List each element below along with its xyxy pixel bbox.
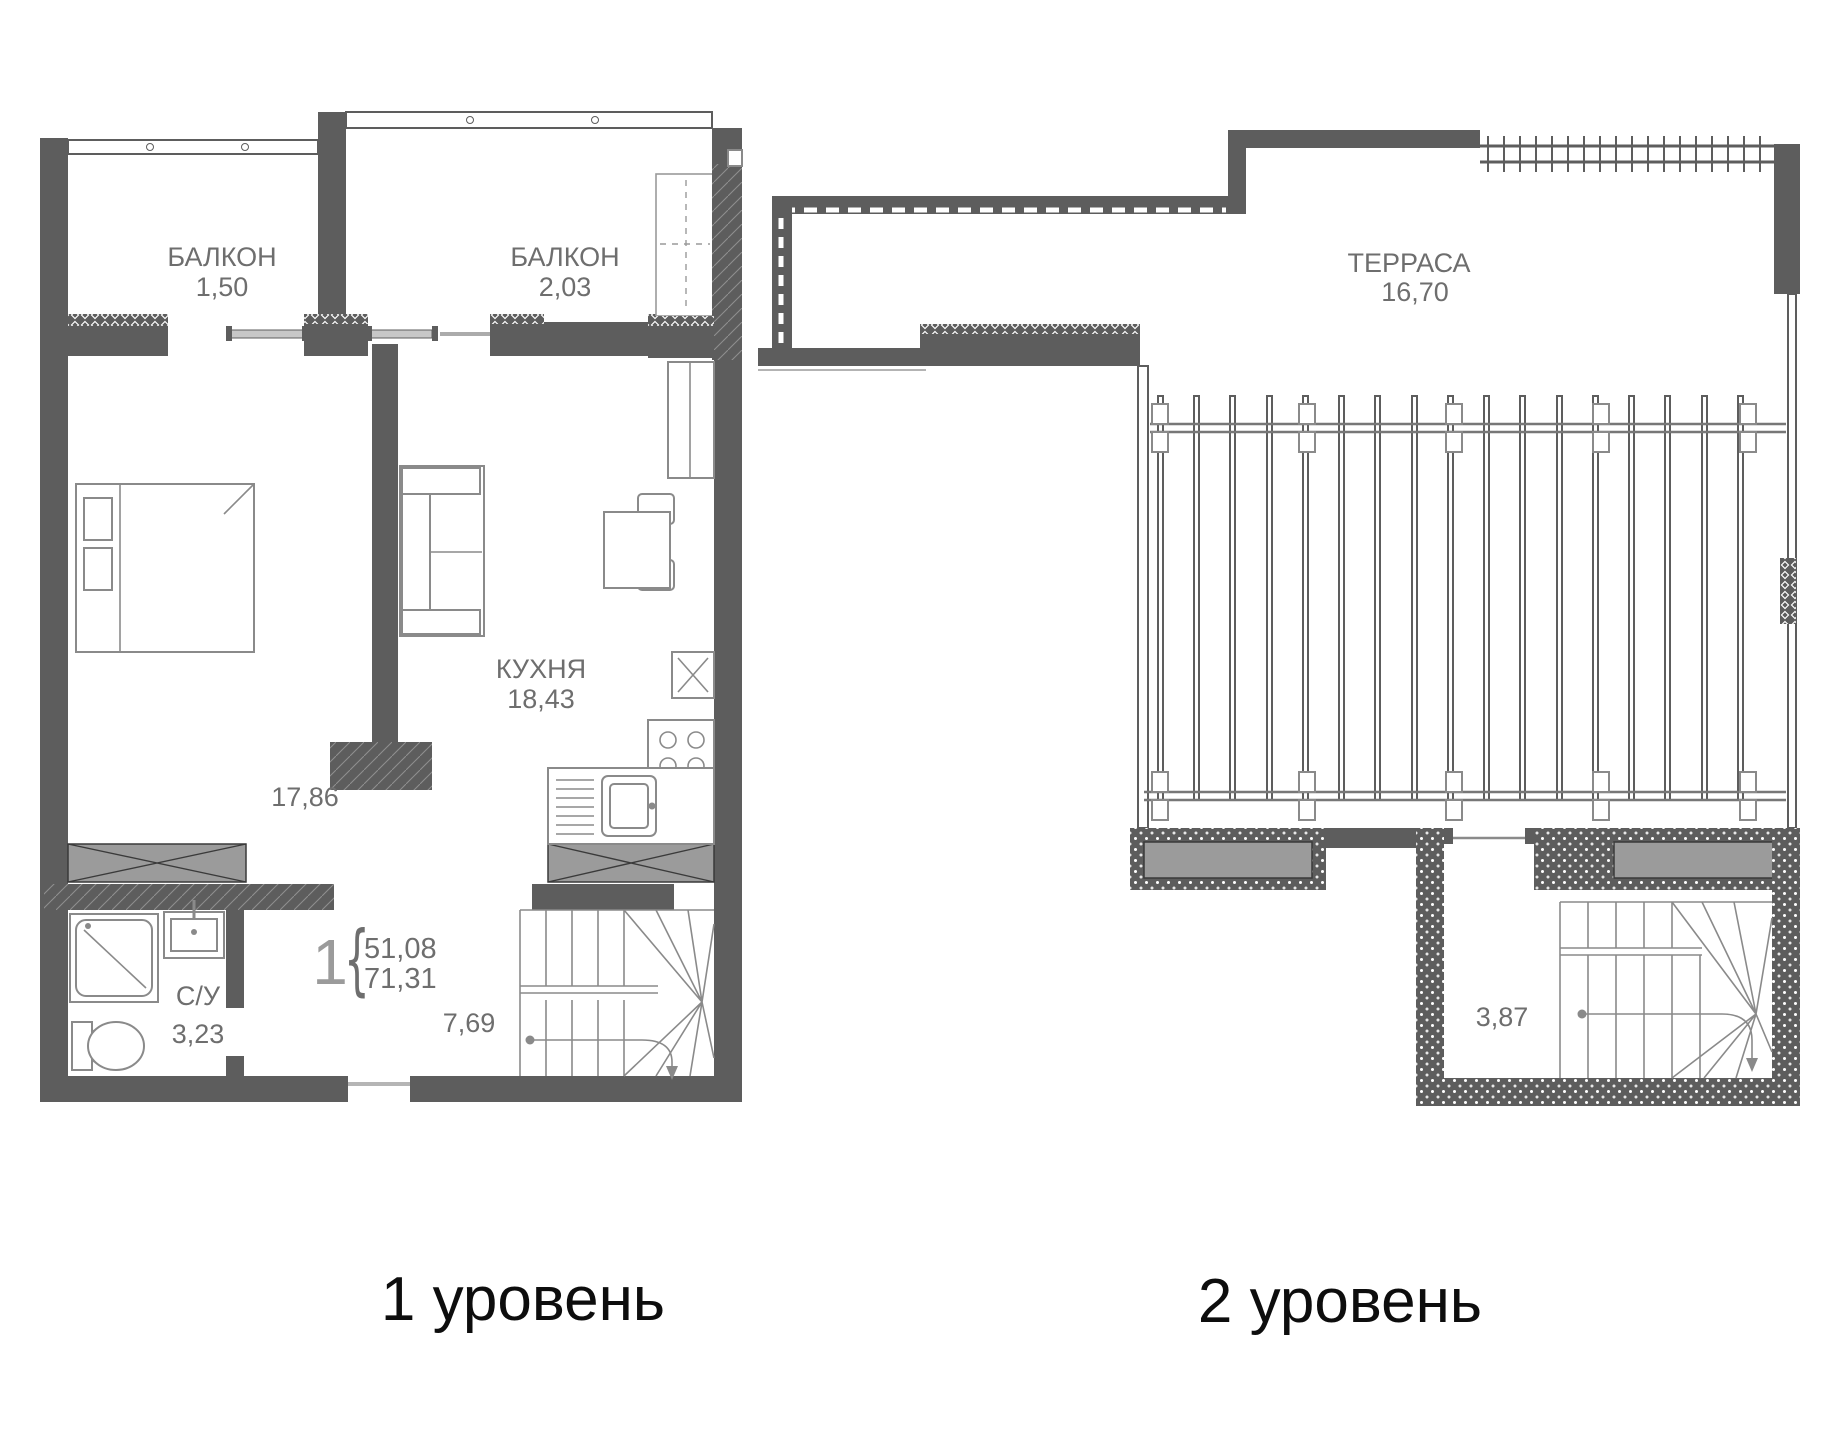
window-sill-hatch: [68, 314, 168, 326]
stair-room: [1416, 828, 1800, 1106]
kitchen-label: КУХНЯ: [496, 654, 586, 684]
window-sill-hatch: [490, 314, 544, 324]
pergola-top-rail: [1150, 424, 1786, 432]
wall-right-hatch: [1780, 558, 1796, 624]
total-area: 71,31: [364, 963, 437, 995]
balcony2-label: БАЛКОН: [510, 242, 619, 272]
floor-plan-drawing: БАЛКОН 1,50 БАЛКОН 2,03 КУХНЯ 18,43 17,8…: [0, 0, 1838, 1448]
hall-area: 7,69: [443, 1008, 496, 1038]
bedroom-area: 17,86: [271, 782, 339, 812]
wall-connector: [1324, 828, 1416, 848]
wall-notch: [728, 150, 742, 166]
bathroom-area: 3,23: [172, 1019, 225, 1049]
wall-stairwell-top: [532, 884, 674, 910]
terrace-label: ТЕРРАСА: [1347, 248, 1470, 278]
floor-plan-page: БАЛКОН 1,50 БАЛКОН 2,03 КУХНЯ 18,43 17,8…: [0, 0, 1838, 1448]
wall-hatch: [712, 164, 742, 360]
terrace-area: 16,70: [1381, 277, 1449, 307]
wall-bathroom-right: [226, 910, 244, 1008]
terrace-railing: [1480, 136, 1774, 172]
balcony2-area: 2,03: [539, 272, 592, 302]
stairs-level1: [520, 910, 714, 1080]
level1-title: 1 уровень: [381, 1265, 665, 1334]
window-sill-hatch: [648, 316, 714, 326]
faucet: [649, 803, 656, 810]
level2-walls: [648, 130, 1800, 828]
door-jamb: [1525, 828, 1534, 844]
vestibule: [656, 174, 714, 316]
vent-box: [672, 652, 714, 698]
balcony1-label: БАЛКОН: [167, 242, 276, 272]
wardrobe-shaft-kitchen: [548, 844, 714, 882]
wall-stub-hatch: [330, 742, 432, 790]
stair-room-wall-right: [1772, 828, 1800, 1106]
wall-parapet: [920, 334, 1140, 366]
balcony-door-1: [228, 330, 306, 338]
toilet: [72, 1022, 144, 1070]
wall-sill: [490, 324, 544, 356]
window-line: [440, 332, 490, 336]
wall-sill-entry: [648, 326, 714, 358]
pergola: [1144, 396, 1786, 820]
window-cap: [226, 326, 232, 341]
window-band-balcony2: [346, 112, 712, 128]
level2-title: 2 уровень: [1198, 1267, 1482, 1336]
wall-balcony-divider: [318, 112, 346, 344]
stair-arrow-head: [1746, 1058, 1758, 1072]
wall-hatch: [44, 884, 334, 910]
apartment-area-badge: 1 { 51,08 71,31: [312, 913, 436, 1005]
wardrobe-shaft-bedroom: [68, 844, 246, 882]
wall-bottom-right: [410, 1076, 742, 1102]
wall-left: [40, 138, 68, 1102]
dining-table: [604, 512, 670, 588]
level1-plan: БАЛКОН 1,50 БАЛКОН 2,03 КУХНЯ 18,43 17,8…: [40, 112, 742, 1102]
pergola-slats: [1158, 396, 1743, 800]
kitchen-counter-sink: [548, 768, 714, 844]
wall-pier: [304, 324, 368, 356]
wall-bathroom-right-stub: [226, 1056, 244, 1082]
wall-vestibule-bottom: [758, 348, 926, 366]
wall-right-thick: [1774, 144, 1800, 294]
parapet-hatch: [920, 324, 1140, 334]
pier-hatch: [304, 314, 368, 324]
balcony-door-2: [368, 330, 432, 338]
entry-door-threshold: [348, 1082, 410, 1086]
wall-bedroom-kitchen: [372, 344, 398, 742]
planter-left: [1144, 842, 1312, 878]
wall-right-kitchen: [714, 360, 742, 1102]
stair-room-wall-bottom: [1416, 1078, 1800, 1106]
window-cap: [432, 326, 438, 341]
tall-cabinet: [668, 362, 714, 478]
planter-right: [1614, 842, 1774, 878]
wall-terrace-top2: [1228, 130, 1480, 148]
wall-bottom-left: [40, 1076, 348, 1102]
stair-room-wall-left: [1416, 828, 1444, 1106]
kitchen-area: 18,43: [507, 684, 575, 714]
stair-room-area: 3,87: [1476, 1002, 1529, 1032]
living-area: 51,08: [364, 933, 437, 965]
door-jamb: [1444, 828, 1453, 844]
level2-plan: ТЕРРАСА 16,70 3,87: [648, 130, 1800, 1106]
stairs-level2: [1560, 902, 1772, 1078]
level2-bottom: [1130, 828, 1800, 1106]
bed: [76, 484, 254, 652]
apartment-number: 1: [312, 926, 348, 998]
pergola-bottom-rail: [1144, 792, 1786, 800]
window-band-balcony1: [68, 140, 318, 154]
window-cap: [366, 326, 372, 341]
wall-pergola-left: [1138, 366, 1148, 828]
wall-sill: [68, 326, 168, 356]
balcony1-area: 1,50: [196, 272, 249, 302]
bathroom-label: С/У: [176, 981, 221, 1011]
sofa: [400, 466, 484, 636]
shower: [70, 914, 158, 1002]
